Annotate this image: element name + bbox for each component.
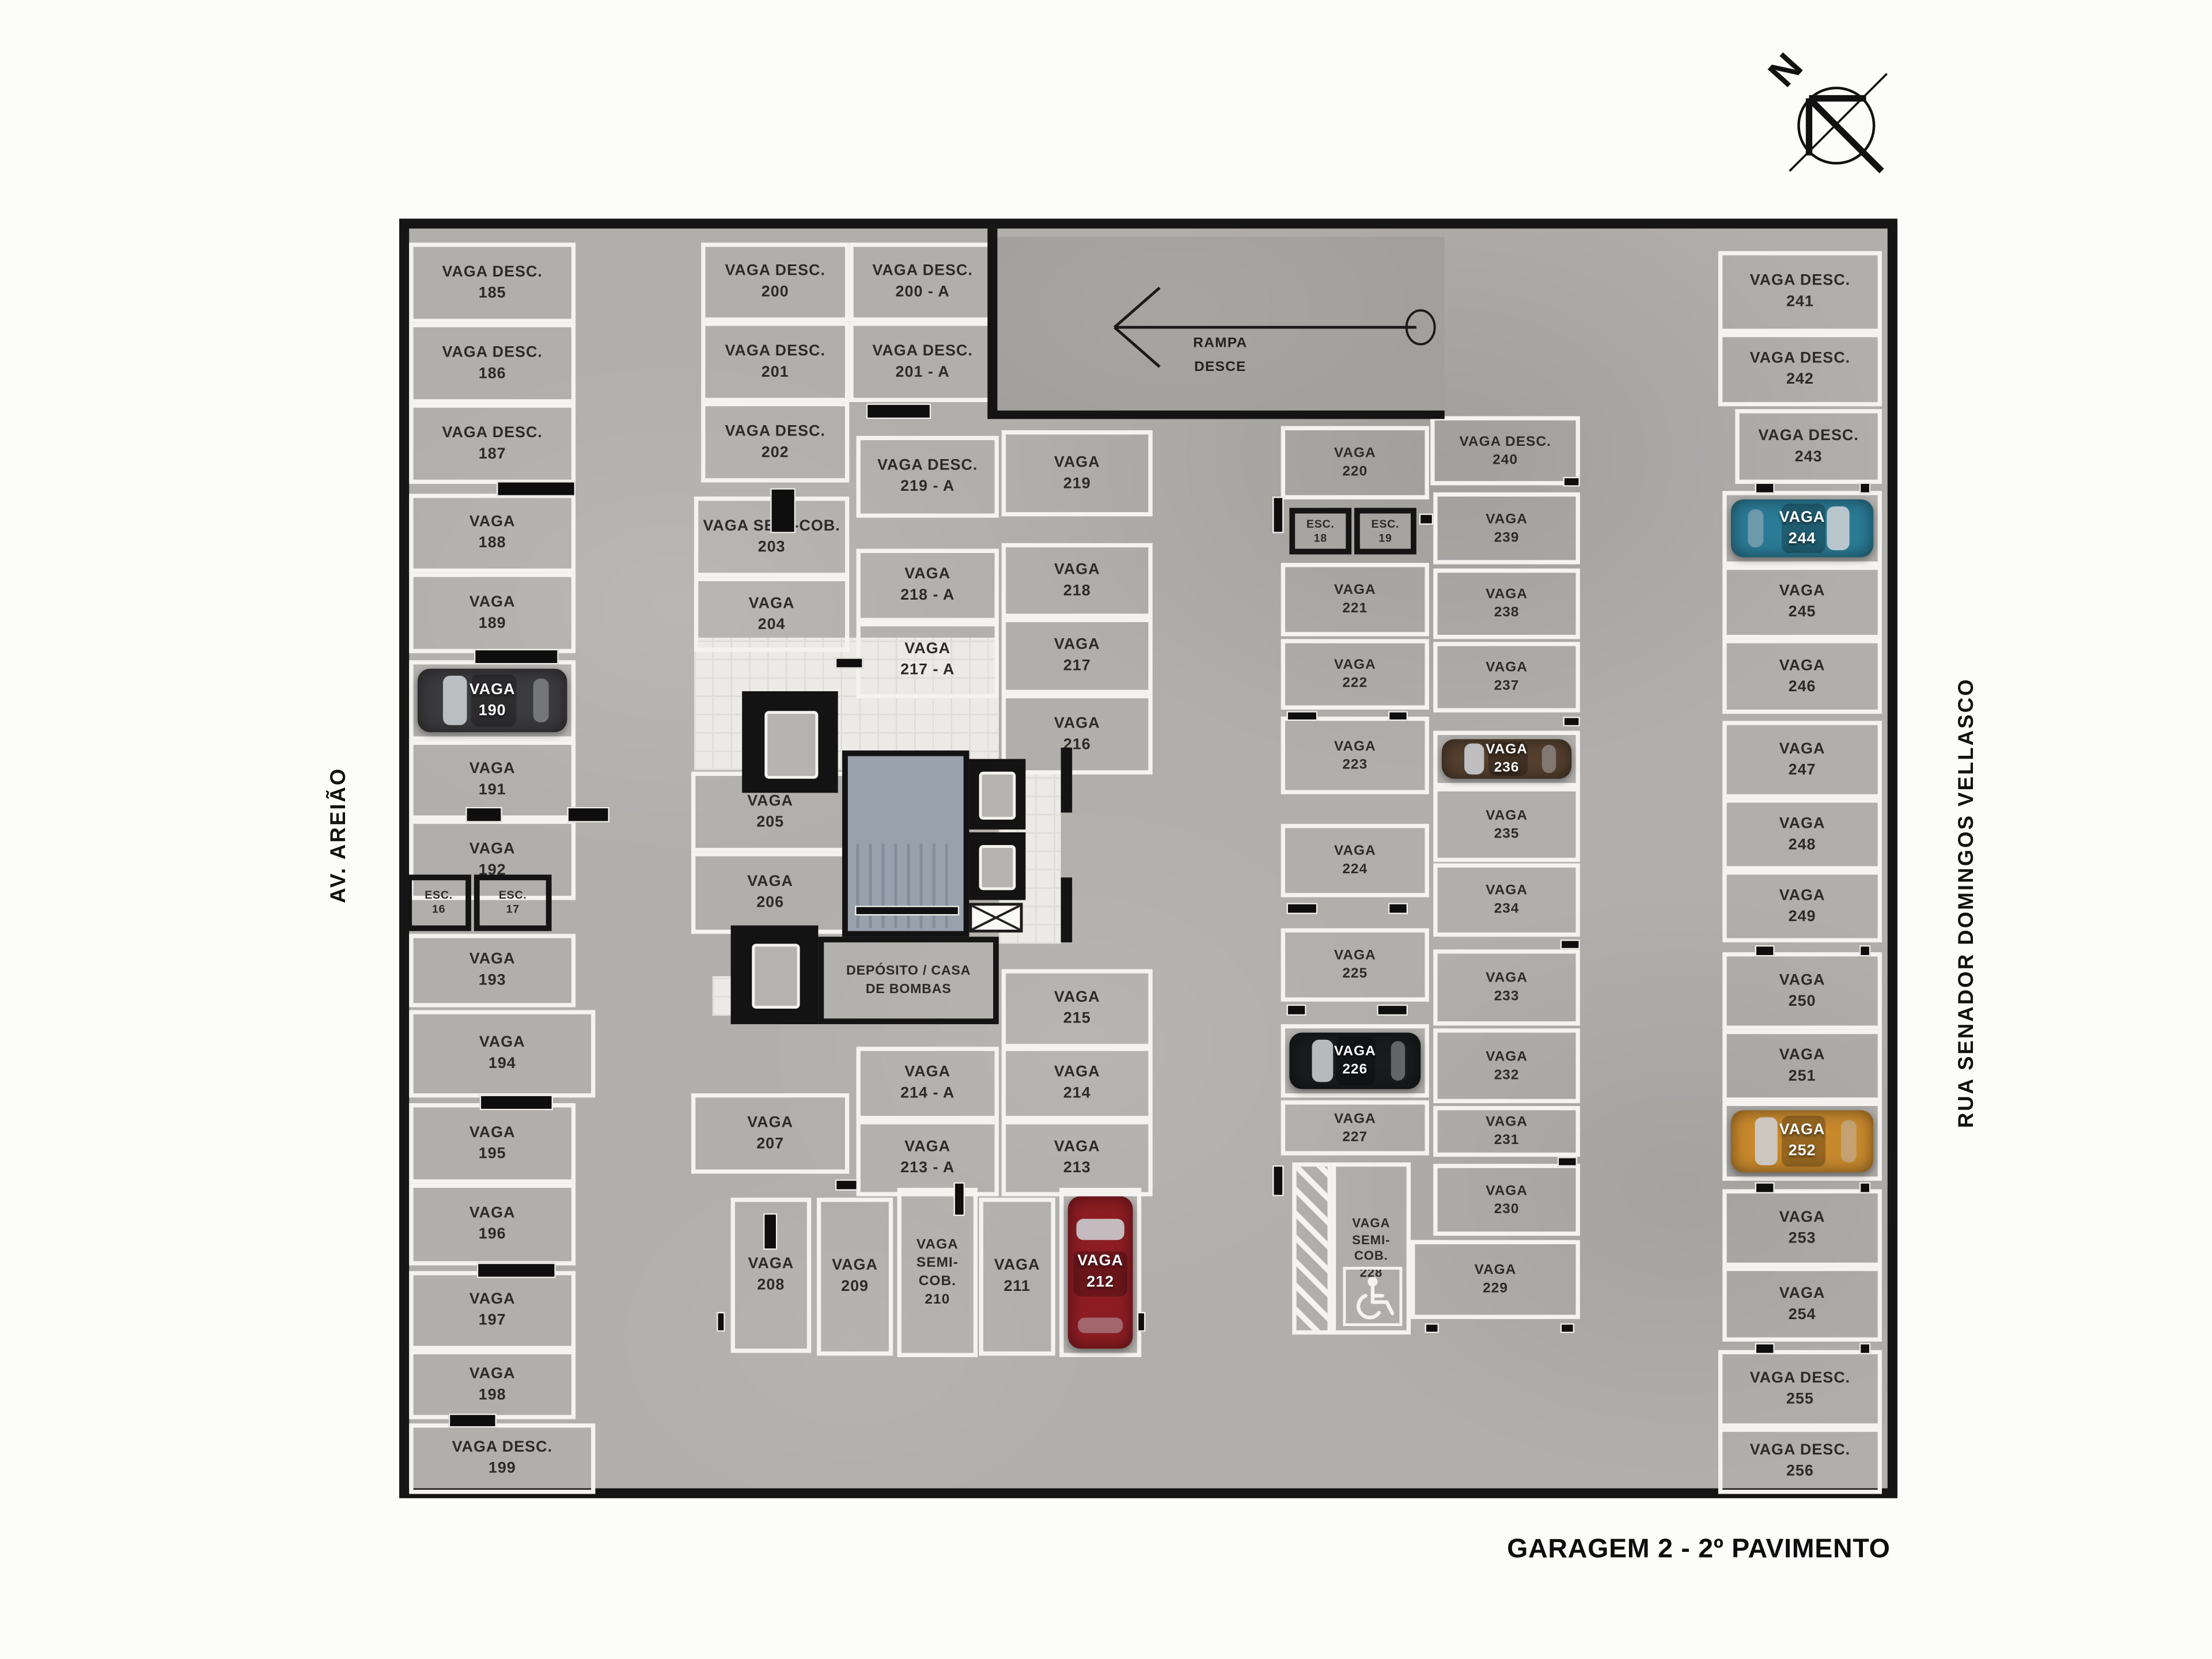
stall-label-line: 197 [479,1310,506,1332]
elevator-shaft-4 [731,926,819,1024]
stall-label-line: 198 [479,1385,506,1406]
stall-label-line: 213 [1063,1158,1091,1180]
stall-label-line: SEMI- [1352,1232,1390,1248]
stair-room-esc-16: ESC.16 [406,874,471,931]
stall-201: VAGA DESC.201 [701,321,849,402]
stall-233: VAGA233 [1433,949,1580,1025]
stall-label-line: 208 [757,1275,785,1297]
car-windshield [443,676,467,725]
stall-label-line: VAGA [469,592,516,613]
stall-249: VAGA249 [1722,870,1882,942]
stall-label-line: VAGA [1486,1047,1528,1066]
stall-label-line: VAGA DESC. [442,422,542,444]
column-pillar [449,1414,497,1427]
stall-label-line: 214 - A [900,1084,955,1105]
column-pillar [1859,483,1871,494]
stall-label-line: 233 [1494,987,1520,1006]
ramp-area: RAMPA DESCE [996,237,1445,410]
stall-label-line: 232 [1494,1066,1520,1084]
column-pillar [1755,1343,1775,1354]
stall-193: VAGA193 [409,934,575,1007]
stall-label-line: VAGA [469,1289,516,1310]
stall-244: VAGA244 [1722,491,1882,566]
stall-label-line: VAGA [1352,1216,1390,1232]
stall-label-line: 212 [1086,1272,1114,1294]
stall-label-line: VAGA [469,512,516,533]
elevator-shaft-1 [742,691,838,793]
stall-label-line: VAGA [1779,1120,1825,1141]
column-pillar [1859,1343,1871,1354]
stall-label-line: VAGA [749,593,795,615]
ramp-label-line1: RAMPA [996,336,1445,351]
stall-label-line: 218 - A [900,585,955,607]
column-pillar [474,649,559,665]
stall-245: VAGA245 [1722,566,1882,639]
stall-206: VAGA206 [691,852,849,934]
stall-231: VAGA231 [1433,1106,1580,1157]
stall-label-line: VAGA [1486,741,1528,759]
stall-label-line: VAGA [747,1112,793,1134]
wheelchair-icon [1349,1272,1396,1320]
stall-label-line: VAGA [832,1256,878,1277]
column-pillar [1558,1157,1577,1166]
stall-label-line: VAGA [469,759,516,781]
stall-239: VAGA239 [1433,493,1580,565]
stall-label-line: 226 [1342,1061,1368,1080]
stall-label-line: 218 [1063,581,1091,602]
stall-190: VAGA190 [409,660,575,741]
column-pillar [1377,1005,1408,1016]
stair-landing [855,906,959,915]
stall-label-line: 205 [756,812,784,833]
stair-room-esc-17: ESC.17 [474,874,552,931]
stair-room-esc-19: ESC.19 [1354,508,1416,555]
stall-232: VAGA232 [1433,1028,1580,1103]
stall-label-line: VAGA [1334,444,1376,463]
stall-label-line: 229 [1483,1279,1508,1298]
column-pillar [1137,1312,1146,1332]
stall-label-line: 195 [479,1143,506,1165]
stall-218: VAGA218 [1002,543,1153,618]
column-pillar [770,488,796,533]
column-pillar [1286,1005,1306,1016]
column-pillar [1560,1323,1574,1333]
stall-label-line: VAGA [1486,882,1528,900]
column-pillar [1859,945,1871,957]
column-pillar [835,1179,858,1191]
stall-label-line: 217 [1063,656,1091,677]
stall-label-line: 248 [1789,835,1816,856]
stall-219: VAGA219 [1002,430,1153,516]
stall-label-line: 209 [841,1277,869,1298]
stall-label-line: 203 [758,537,786,558]
column-pillar [497,481,575,497]
stall-200: VAGA DESC.200 [701,243,849,321]
stall-label-line: VAGA [904,1137,950,1158]
stall-234: VAGA234 [1433,863,1580,937]
stair-hall [842,751,969,937]
column-pillar [1272,1165,1284,1196]
stall-label-line: VAGA [1486,510,1528,528]
stall-202: VAGA DESC.202 [701,402,849,483]
stall-label-line: 246 [1789,676,1816,698]
stall-label-line: 207 [756,1134,784,1155]
stall-label-line: VAGA DESC. [1750,1368,1850,1389]
stall-label-line: 200 [762,282,789,304]
stall-210: VAGASEMI-COB.210 [897,1188,978,1357]
car-rear-window [1541,745,1556,772]
column-pillar [1755,483,1775,494]
stall-label-line: VAGA [747,872,793,893]
elevator-cab-2 [979,772,1016,820]
car-windshield [1464,744,1484,774]
sheet-title: GARAGEM 2 - 2º PAVIMENTO [1507,1535,1890,1566]
stall-185: VAGA DESC.185 [409,243,575,323]
stall-220: VAGA220 [1281,426,1429,499]
stall-label-line: VAGA [1779,885,1825,907]
stall-label-line: 185 [479,283,506,304]
street-label-left: AV. AREIÃO [327,767,351,903]
stall-186: VAGA DESC.186 [409,323,575,404]
stall-label-line: 245 [1789,603,1816,624]
stall-label-line: 252 [1789,1141,1816,1162]
stall-label-line: VAGA [1486,659,1528,677]
stall-label-line: VAGA [1486,969,1528,987]
ramp-wall-bottom [987,411,1444,419]
stall-label-line: VAGA [469,1203,516,1225]
stall-label-line: 251 [1789,1066,1816,1087]
stall-label-line: VAGA [469,949,516,971]
stall-label-line: 244 [1789,528,1816,550]
stall-198: VAGA198 [409,1350,575,1419]
car-rear-window [533,679,550,722]
stall-label-line: 219 [1063,474,1091,495]
stall-label-line: 17 [506,903,520,916]
stall-label-line: 214 [1063,1084,1091,1105]
stall-label-line: VAGA [1054,559,1100,581]
stall-label-line: VAGA [1334,1043,1376,1061]
stall-188: VAGA188 [409,494,575,573]
column-pillar [1563,477,1580,487]
stall-label-line: VAGA DESC. [872,340,972,362]
stall-label-line: 210 [925,1291,950,1309]
stall-235: VAGA235 [1433,787,1580,862]
wheelchair-box [1343,1267,1402,1326]
stall-217-A: VAGA217 - A [857,622,999,698]
column-pillar [1286,903,1317,914]
stall-label-line: VAGA [1054,452,1100,474]
stall-251: VAGA251 [1722,1030,1882,1102]
stall-label-line: COB. [919,1272,956,1291]
stall-label-line: 201 - A [896,362,950,383]
stall-204: VAGA204 [694,577,849,652]
stall-label-line: 189 [479,613,506,634]
stall-label-line: 18 [1314,531,1327,545]
car-rear-window [1078,1318,1123,1333]
stall-label-line: VAGA [1054,1137,1100,1158]
stall-label-line: VAGA [1779,738,1825,760]
stall-label-line: 187 [479,444,506,465]
stall-252: VAGA252 [1722,1102,1882,1181]
stall-label-line: VAGA DESC. [1750,349,1850,370]
ramp-arrow [996,237,1445,410]
stall-label-line: 231 [1494,1131,1520,1150]
stall-label-line: VAGA [916,1236,959,1254]
stall-label-line: VAGA [1779,970,1825,991]
core-wall-right-lower [1061,877,1073,942]
stall-label-line: 235 [1494,824,1520,843]
stall-label-line: VAGA [747,791,793,812]
stall-label-line: VAGA [904,639,950,660]
elevator-cab-4 [752,944,800,1009]
stall-label-line: 186 [479,363,506,385]
stall-label-line: ESC. [1306,517,1335,531]
stall-label-line: 237 [1494,677,1520,696]
stall-label-line: VAGA [1334,656,1376,675]
stall-label-line: VAGA DESC. [1459,433,1551,451]
column-pillar [1388,903,1408,914]
car-212: VAGA212 [1068,1196,1133,1349]
stall-label-line: 254 [1789,1304,1816,1325]
stall-label-line: VAGA DESC. [725,340,825,362]
stall-label-line: VAGA [1486,585,1528,604]
stall-label-line: 200 - A [896,282,950,304]
stall-label-line: VAGA [994,1256,1040,1277]
stall-214: VAGA214 [1002,1047,1153,1120]
stall-238: VAGA238 [1433,569,1580,639]
stall-label-line: VAGA DESC. [1758,425,1858,446]
stall-196: VAGA196 [409,1184,575,1266]
stall-240: VAGA DESC.240 [1430,416,1580,485]
stall-219-A: VAGA DESC.219 - A [857,436,999,518]
stall-label-line: VAGA [1779,813,1825,835]
car-rear-window [1391,1041,1405,1080]
stall-213: VAGA213 [1002,1120,1153,1196]
stall-label-line: ESC. [499,889,527,903]
stall-label-line: VAGA [1077,1251,1123,1272]
stall-label-line: VAGA [469,839,516,860]
stall-246: VAGA246 [1722,639,1882,714]
column-pillar [835,657,863,669]
stall-189: VAGA189 [409,573,575,653]
column-pillar [1388,711,1408,721]
stall-label-line: 194 [488,1054,516,1075]
stall-label-line: 191 [479,780,506,801]
stall-194: VAGA194 [409,1010,595,1097]
stall-222: VAGA222 [1281,639,1429,709]
stall-label-line: 193 [479,971,506,992]
stall-label-line: VAGA [469,1122,516,1143]
north-letter: N [1766,45,1811,94]
elevator-cab-1 [764,711,818,779]
car-windshield [1827,506,1850,550]
column-pillar [477,1263,556,1278]
stall-label-line: VAGA [904,1062,950,1084]
stall-218-A: VAGA218 - A [857,549,999,622]
stall-237: VAGA237 [1433,642,1580,712]
stall-label-line: 221 [1342,600,1368,618]
stall-label-line: ESC. [1372,517,1400,531]
stall-label-line: 188 [479,533,506,555]
stall-248: VAGA248 [1722,798,1882,870]
stall-label-line: 225 [1342,965,1368,983]
stall-255: VAGA DESC.255 [1718,1350,1882,1428]
pump-room: DEPÓSITO / CASA DE BOMBAS [818,937,998,1024]
column-pillar [1286,711,1317,721]
stall-label-line: 199 [488,1459,516,1480]
stall-label-line: VAGA DESC. [877,456,978,477]
stall-label-line: VAGA [1486,806,1528,825]
stall-label-line: VAGA [1054,713,1100,734]
stall-label-line: 255 [1786,1389,1814,1410]
stall-label-line: VAGA DESC. [1750,1440,1850,1461]
stall-209: VAGA209 [817,1198,893,1355]
stall-label-line: VAGA [904,565,950,586]
stall-229: VAGA229 [1411,1240,1580,1319]
stall-label-line: 215 [1063,1009,1091,1030]
column-pillar [954,1182,965,1216]
stall-label-line: 230 [1494,1200,1520,1218]
stall-label-line: 256 [1786,1461,1814,1482]
stall-label-line: VAGA [1054,1062,1100,1084]
stall-label-line: 196 [479,1225,506,1246]
stall-label-line: VAGA [1334,946,1376,965]
accessible-hatch-strip [1292,1162,1332,1335]
column-pillar [717,1312,725,1332]
stall-242: VAGA DESC.242 [1718,333,1882,406]
stall-label-line: VAGA [1779,656,1825,677]
duct-shaft-x-box [969,903,1022,932]
elevator-shaft-3 [969,832,1025,900]
stall-label-line: VAGA [1486,1181,1528,1200]
stall-label-line: VAGA [469,1363,516,1385]
stall-253: VAGA253 [1722,1189,1882,1267]
stall-label-line: VAGA [1334,737,1376,756]
stall-label-line: 227 [1342,1128,1368,1146]
stall-label-line: 249 [1789,906,1816,927]
stall-label-line: VAGA [1334,842,1376,861]
stall-label-line: COB. [1354,1248,1388,1264]
stall-label-line: 211 [1003,1277,1030,1298]
car-rear-window [1840,1120,1856,1162]
pump-room-label-line2: DE BOMBAS [866,980,952,999]
elevator-cab-3 [979,845,1016,890]
stall-label-line: 217 - A [900,660,955,681]
column-pillar [1419,513,1433,525]
stall-label-line: 220 [1342,463,1368,481]
stair-room-esc-18: ESC.18 [1289,508,1351,555]
stall-213-A: VAGA213 - A [857,1120,999,1196]
stall-label-line: 190 [479,700,506,722]
stall-label-line: VAGA [1334,1109,1376,1128]
stall-label-line: 239 [1494,528,1520,547]
car-rear-window [1748,509,1764,548]
stall-label-line: SEMI- [916,1254,959,1272]
elevator-shaft-2 [969,759,1025,829]
stall-label-line: VAGA DESC. [872,261,972,282]
stall-243: VAGA DESC.243 [1735,409,1882,484]
stall-223: VAGA223 [1281,717,1429,794]
stall-187: VAGA DESC.187 [409,403,575,484]
column-pillar [866,403,931,419]
stall-label-line: 238 [1494,604,1520,622]
stall-label-line: 234 [1494,900,1520,918]
stall-227: VAGA227 [1281,1100,1429,1156]
stall-199: VAGA DESC.199 [409,1423,595,1494]
column-pillar [763,1213,777,1250]
car-190: VAGA190 [418,669,567,732]
column-pillar [465,807,502,823]
core-wall-right-upper [1061,748,1073,813]
stall-label-line: 242 [1786,370,1814,391]
stall-250: VAGA250 [1722,952,1882,1030]
pump-room-label-line1: DEPÓSITO / CASA [846,962,971,980]
column-pillar [1563,717,1580,726]
stall-label-line: 202 [762,442,789,464]
stall-207: VAGA207 [691,1093,849,1174]
stall-217: VAGA217 [1002,618,1153,694]
stall-212: VAGA212 [1059,1188,1141,1357]
stall-214-A: VAGA214 - A [857,1047,999,1120]
car-windshield [1755,1118,1778,1165]
car-windshield [1075,1219,1125,1240]
column-pillar [480,1094,553,1110]
stall-label-line: 204 [758,615,786,636]
stall-211: VAGA211 [979,1198,1055,1355]
stall-label-line: VAGA [1486,1113,1528,1131]
stall-label-line: VAGA [1779,507,1825,528]
stall-201-A: VAGA DESC.201 - A [849,321,996,402]
stall-label-line: VAGA [1054,635,1100,656]
stall-247: VAGA247 [1722,721,1882,798]
stall-label-line: VAGA DESC. [442,262,542,283]
stall-label-line: VAGA [748,1254,794,1275]
stall-label-line: VAGA [1054,987,1100,1009]
stall-label-line: 247 [1789,760,1816,781]
column-pillar [567,807,609,823]
column-pillar [1755,945,1775,957]
stall-label-line: VAGA DESC. [452,1438,552,1459]
stall-236: VAGA236 [1433,731,1580,787]
street-label-right: RUA SENADOR DOMINGOS VELLASCO [1955,677,1979,1128]
stall-label-line: 224 [1342,861,1368,879]
stall-256: VAGA DESC.256 [1718,1427,1882,1494]
stall-224: VAGA224 [1281,824,1429,897]
car-252: VAGA252 [1731,1110,1873,1172]
stall-label-line: 222 [1342,675,1368,693]
stall-label-line: VAGA DESC. [1750,271,1850,292]
stall-label-line: 219 - A [900,477,955,498]
stall-label-line: 213 - A [900,1158,955,1180]
stall-label-line: 253 [1789,1228,1816,1249]
stall-label-line: VAGA DESC. [725,261,825,282]
column-pillar [1272,497,1284,533]
stall-label-line: 206 [756,893,784,914]
car-226: VAGA226 [1289,1033,1421,1089]
stall-label-line: 19 [1378,531,1392,545]
stall-254: VAGA254 [1722,1267,1882,1342]
stall-label-line: VAGA DESC. [725,421,825,442]
stall-label-line: VAGA [1334,581,1376,600]
stall-label-line: VAGA [1474,1261,1516,1279]
column-pillar [1755,1182,1775,1194]
stall-label-line: VAGA [1779,581,1825,603]
stall-221: VAGA221 [1281,563,1429,636]
car-244: VAGA244 [1731,499,1873,557]
ramp-label-line2: DESCE [996,359,1445,375]
ramp-wall-left [987,229,997,412]
stall-label-line: 223 [1342,755,1368,774]
